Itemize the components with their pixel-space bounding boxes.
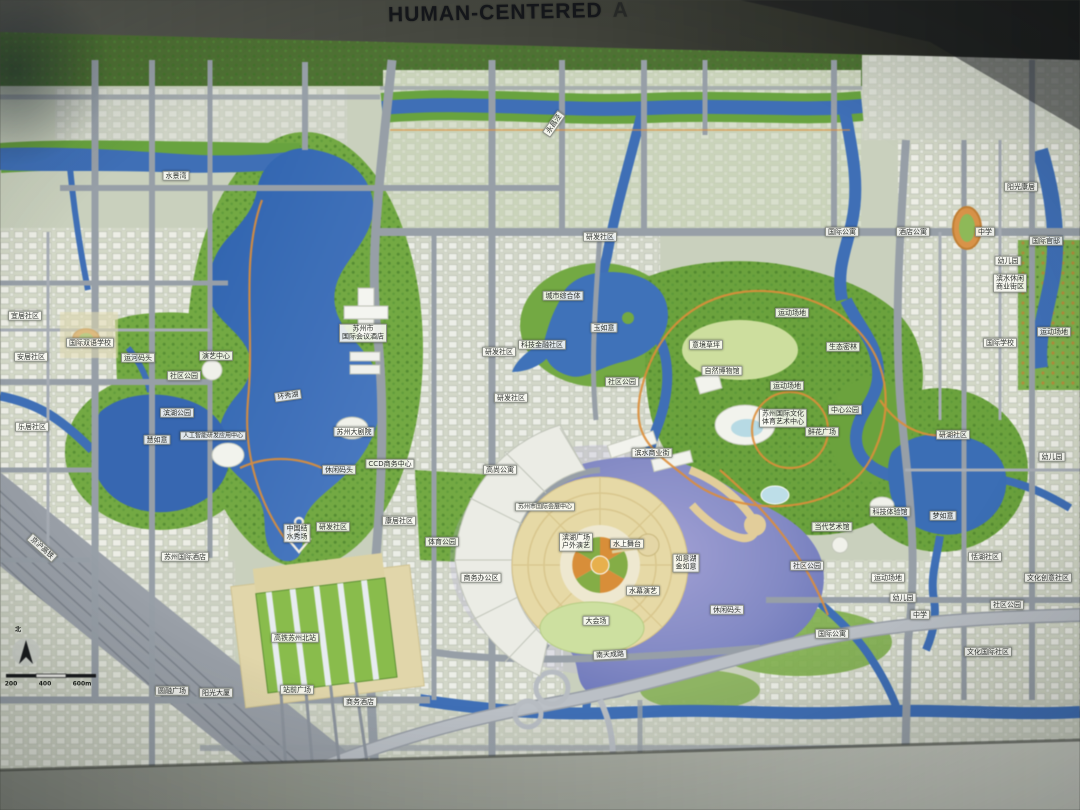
map-text-label: 600m: [71, 680, 94, 687]
map-label-chip: 大会场: [583, 616, 610, 626]
map-label-chip: 水景湾: [163, 171, 190, 181]
map-label-chip: 商务酒店: [343, 697, 377, 707]
map-label-chip: 研发社区: [583, 232, 617, 242]
map-label-chip: 研发社区: [482, 347, 516, 357]
map-label-chip: 幼儿园: [890, 593, 917, 603]
photo-frame: HUMAN-CENTEREDA 水景湾永昌泾研发社区城市综合体玉如意科技金融社区…: [0, 0, 1080, 810]
map-label-chip: 人工智能研发应用中心: [180, 431, 246, 440]
map-label-chip: 研发社区: [494, 393, 528, 403]
map-label-chip: 滨水商业街: [632, 448, 673, 458]
map-label-chip: 乐居社区: [15, 422, 49, 432]
map-label-chip: 运动场地: [770, 381, 804, 391]
map-label-chip: 环秀湖: [274, 389, 302, 403]
map-label-chip: 城市综合体: [543, 291, 584, 301]
map-label-chip: 中国结 水秀场: [284, 524, 311, 543]
map-label-chip: 商务办公区: [461, 573, 502, 583]
map-label-chip: 运河码头: [121, 353, 155, 363]
map-label-chip: 康居社区: [382, 516, 416, 526]
map-label-chip: 苏州国际酒店: [161, 552, 209, 562]
map-label-chip: 幼儿园: [995, 256, 1022, 266]
map-label-chip: 中学: [975, 227, 995, 237]
map-label-chip: 滨水休闲 商业街区: [993, 274, 1027, 293]
map-label-chip: 苏州大剧院: [334, 427, 375, 437]
map-label-chip: 安居社区: [14, 352, 48, 362]
map-label-chip: 科技体验馆: [870, 507, 911, 517]
map-label-chip: 中心公园: [828, 405, 862, 415]
map-text-label: 400: [37, 680, 54, 687]
map-label-chip: 圆融广场: [155, 686, 189, 696]
map-label-chip: 永昌泾: [542, 110, 566, 138]
map-label-chip: 恬湖社区: [968, 552, 1002, 562]
map-label-chip: 自然博物馆: [702, 366, 743, 376]
map-label-chip: 社区公园: [990, 600, 1024, 610]
map-label-chip: 国际公寓: [825, 227, 859, 237]
map-label-chip: 苏州市国际会展中心: [515, 502, 575, 511]
map-label-chip: 站前广场: [280, 685, 314, 695]
map-label-chip: 国际学校: [983, 338, 1017, 348]
map-label-chip: CCD商务中心: [365, 459, 414, 469]
map-label-chip: 国际官邸: [1029, 236, 1063, 246]
map-text-label: 北: [13, 626, 23, 633]
map-label-chip: 阳光康居: [1004, 182, 1038, 192]
map-label-chip: 国际双语学校: [66, 338, 114, 348]
map-label-chip: 宜居社区: [8, 311, 42, 321]
map-label-chip: 南天成路: [593, 649, 627, 661]
map-text-label: 200: [3, 680, 20, 687]
map-label-chip: 梦如意: [930, 511, 957, 521]
map-label-chip: 如意湖 金如意: [673, 554, 700, 573]
map-label-chip: 社区公园: [790, 561, 824, 571]
map-label-chip: 休闲码头: [322, 465, 356, 475]
map-label-chip: 文化国际社区: [964, 647, 1012, 657]
map-label-chip: 体育公园: [425, 537, 459, 547]
map-label-chip: 滨湖广场 户外演艺: [559, 533, 593, 552]
map-label-chip: 演艺中心: [199, 351, 233, 361]
map-label-chip: 运动场地: [1037, 327, 1071, 337]
map-label-chip: 玉如意: [591, 323, 618, 333]
map-label-chip: 研发社区: [316, 522, 350, 532]
map-label-chip: 酒店公寓: [896, 227, 930, 237]
map-label-chip: 中学: [910, 610, 930, 620]
map-label-chip: 京沪高铁: [26, 533, 58, 563]
map-labels-layer: 水景湾永昌泾研发社区城市综合体玉如意科技金融社区研发社区研发社区社区公园滨水商业…: [0, 0, 1080, 810]
map-label-chip: 鲜花广场: [805, 427, 839, 437]
map-label-chip: 科技金融社区: [518, 340, 566, 350]
map-label-chip: 苏州国际文化 体育艺术中心: [759, 409, 807, 428]
map-label-chip: 社区公园: [167, 371, 201, 381]
map-label-chip: 苏州市 国际会议酒店: [339, 324, 387, 343]
map-label-chip: 阳光大厦: [199, 688, 233, 698]
map-label-chip: 社区公园: [605, 377, 639, 387]
map-label-chip: 生态密林: [826, 342, 860, 352]
map-label-chip: 运动场地: [871, 573, 905, 583]
map-label-chip: 国际公寓: [815, 629, 849, 639]
map-label-chip: 高铁苏州北站: [271, 633, 319, 643]
map-label-chip: 慧如意: [144, 435, 171, 445]
map-label-chip: 研湖社区: [936, 430, 970, 440]
map-label-chip: 水幕演艺: [626, 586, 660, 596]
map-label-chip: 高尚公寓: [483, 465, 517, 475]
map-label-chip: 当代艺术馆: [812, 522, 853, 532]
map-label-chip: 幼儿园: [1039, 452, 1066, 462]
map-label-chip: 意境草坪: [689, 340, 723, 350]
map-label-chip: 水上舞台: [610, 539, 644, 549]
map-label-chip: 文化创意社区: [1024, 573, 1072, 583]
map-label-chip: 休闲码头: [710, 605, 744, 615]
map-label-chip: 滨湖公园: [160, 408, 194, 418]
map-label-chip: 运动场地: [775, 308, 809, 318]
